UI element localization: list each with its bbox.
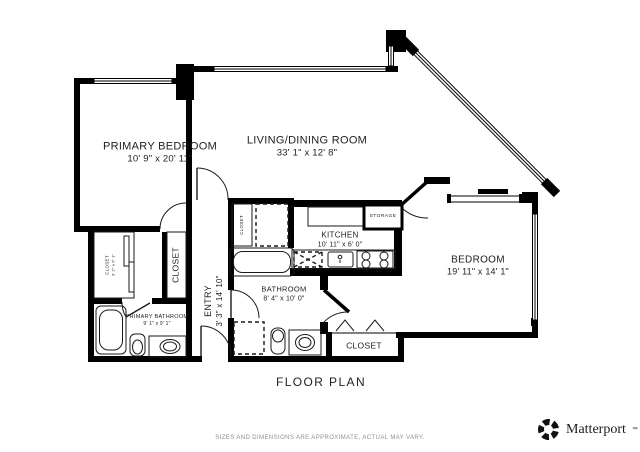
- brand-name: Matterport: [566, 422, 626, 438]
- matterport-pinwheel-icon: [536, 417, 561, 442]
- room-label-closet-bathroom: CLOSET: [239, 215, 245, 235]
- room-label-closet-primary-small: CLOSET 3' 2" x 6' 1": [104, 254, 115, 276]
- bathtub-primary: [96, 306, 126, 354]
- floorplan-title: FLOOR PLAN: [276, 375, 366, 389]
- floorplan-page: PRIMARY BEDROOM 10' 9" x 20' 11" LIVING/…: [0, 0, 640, 452]
- room-label-primary-bathroom: PRIMARY BATHROOM 9' 1" x 9' 1": [126, 314, 189, 328]
- room-label-entry: ENTRY 3' 3" x 14' 10": [203, 275, 225, 326]
- room-label-storage: STORAGE: [370, 214, 397, 220]
- kitchen-sink: [328, 252, 353, 267]
- room-label-living-dining: LIVING/DINING ROOM 33' 1" x 12' 8": [247, 134, 367, 161]
- dishwasher: [294, 252, 322, 267]
- sink-primary: [130, 334, 145, 356]
- sink-main: [271, 328, 285, 354]
- bathtub-main: [230, 248, 294, 276]
- closet-hanger-icon: [336, 320, 384, 331]
- room-label-closet-bedroom: CLOSET: [346, 340, 382, 351]
- trademark-symbol: ™: [632, 427, 638, 433]
- disclaimer-text: SIZES AND DIMENSIONS ARE APPROXIMATE, AC…: [215, 435, 424, 441]
- kitchen-counter-top: [308, 207, 366, 226]
- room-label-primary-bedroom: PRIMARY BEDROOM 10' 9" x 20' 11": [103, 140, 217, 167]
- room-label-bathroom: BATHROOM 8' 4" x 10' 0": [261, 285, 306, 304]
- shower: [234, 322, 264, 354]
- toilet-primary: [149, 336, 186, 357]
- closet-sliding-door: [124, 236, 129, 266]
- laundry-unit: [256, 204, 288, 246]
- toilet-main: [289, 330, 321, 355]
- stove: [357, 251, 393, 268]
- room-label-closet-hall: CLOSET: [170, 247, 181, 283]
- room-label-bedroom: BEDROOM 19' 11" x 14' 1": [447, 254, 509, 279]
- room-label-kitchen: KITCHEN 10' 11" x 6' 0": [318, 230, 363, 249]
- brand-logo: Matterport™: [536, 417, 638, 442]
- closet-sliding-door: [129, 262, 134, 292]
